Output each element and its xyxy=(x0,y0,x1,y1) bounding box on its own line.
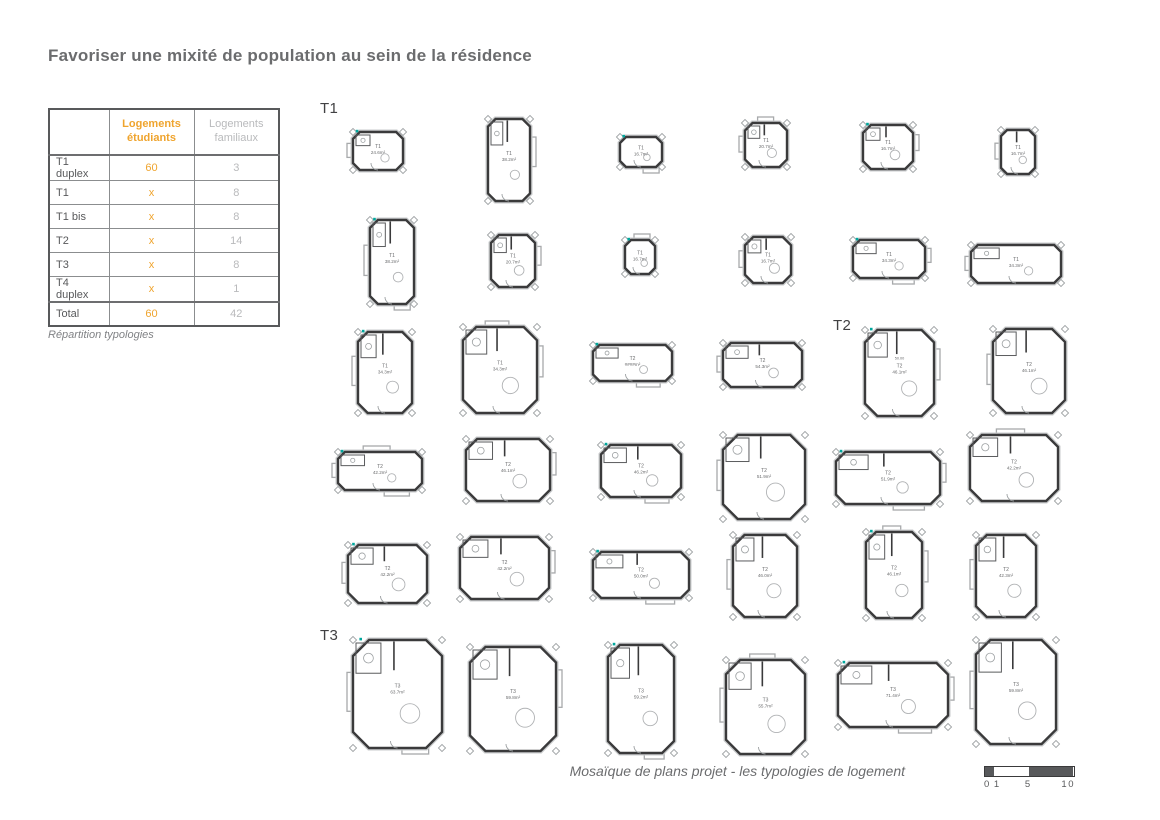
table-row-t1-bis: T1 bisx8 xyxy=(49,205,279,229)
plan-area-label: 16.7m² xyxy=(881,146,896,151)
plan-corner-column xyxy=(423,541,430,548)
plan-corner-column xyxy=(972,613,979,620)
plan-corner-column xyxy=(438,744,445,751)
floor-plan-t3: T363.7m² xyxy=(345,633,450,755)
value-familiaux: 8 xyxy=(194,205,279,229)
floor-plan-t3: T359.8m² xyxy=(462,640,564,758)
value-etudiants: x xyxy=(109,229,194,253)
floor-plan-t1: T138.2m² xyxy=(480,112,538,208)
plan-corner-column xyxy=(722,656,729,663)
plan-area-label: ####m² xyxy=(625,362,641,367)
slide: Favoriser une mixité de population au se… xyxy=(0,0,1160,820)
plan-corner-column xyxy=(972,636,979,643)
plan-area-label: 38.2m² xyxy=(502,157,517,162)
plan-area-label: 59.2m² xyxy=(634,695,649,700)
plan-area-label: 51.9m² xyxy=(881,476,896,481)
plan-corner-column xyxy=(729,613,736,620)
plan-area-label: 16.7m² xyxy=(1011,151,1026,156)
plan-area-label: 55.7m² xyxy=(758,703,773,708)
table-row-t1-duplex: T1 duplex603 xyxy=(49,155,279,181)
plan-area-label: 46.1m² xyxy=(501,468,516,473)
floor-plan-t3: T359.2m² xyxy=(600,638,682,760)
floor-plan-t2: T242.2m² xyxy=(340,538,435,610)
plan-corner-column xyxy=(793,531,800,538)
value-etudiants: 60 xyxy=(109,302,194,326)
plan-corner-column xyxy=(604,749,611,756)
floor-plan-t2: T246.0m² xyxy=(725,528,805,624)
plan-corner-column xyxy=(456,533,463,540)
floor-plan-t2: T246.2m² xyxy=(593,438,689,504)
table-row-total: Total6042 xyxy=(49,302,279,326)
value-familiaux: 3 xyxy=(194,155,279,181)
table-header-row: Logements étudiants Logements familiaux xyxy=(49,109,279,155)
floor-plan-t2: T242.2m² xyxy=(962,428,1066,508)
scale-bar-segment xyxy=(985,767,994,776)
plan-area-label: 50.0m² xyxy=(634,574,649,579)
plan-corner-column xyxy=(966,431,973,438)
plan-area-label: 24.6m² xyxy=(371,150,386,155)
plan-corner-column xyxy=(862,528,869,535)
row-label: T4 duplex xyxy=(49,277,109,303)
plan-corner-column xyxy=(456,595,463,602)
plan-area-label: 63.7m² xyxy=(390,690,405,695)
plan-corner-column xyxy=(862,614,869,621)
plan-corner-column xyxy=(408,409,415,416)
typology-table-body: T1 duplex603T1x8T1 bisx8T2x14T3x8T4 dupl… xyxy=(49,155,279,326)
plan-corner-column xyxy=(936,448,943,455)
plan-corner-column xyxy=(793,613,800,620)
floor-plan-t1: T116.7m² xyxy=(617,233,663,281)
plan-area-label: 46.1m² xyxy=(1022,368,1037,373)
floor-plan-t2: T242.2m² xyxy=(452,530,557,606)
plan-corner-column xyxy=(462,435,469,442)
plan-area-label: 20.7m² xyxy=(506,259,521,264)
floor-plan-t2: T242.3m² xyxy=(968,528,1044,624)
plan-corner-column xyxy=(832,500,839,507)
plan-corner-column xyxy=(545,595,552,602)
plan-area-label: 46.1m² xyxy=(892,370,907,375)
plan-corner-column xyxy=(930,412,937,419)
plan-corner-column xyxy=(677,493,684,500)
plan-corner-column xyxy=(670,641,677,648)
plan-area-label: 34.3m² xyxy=(882,258,897,263)
plan-corner-column xyxy=(466,643,473,650)
scale-label-0-1: 0 1 xyxy=(984,779,1000,790)
plan-area-label: 42.2m² xyxy=(380,572,395,577)
plan-area-label: 34.3m² xyxy=(1009,263,1024,268)
plan-corner-column xyxy=(944,723,951,730)
plan-extra-label: 50.00 xyxy=(895,357,905,361)
row-label: T1 xyxy=(49,181,109,205)
floor-plan-t2: T251.9m² xyxy=(828,445,948,511)
scale-bar-labels: 0 1 5 10 xyxy=(984,779,1075,791)
plan-corner-column xyxy=(719,515,726,522)
value-familiaux: 8 xyxy=(194,181,279,205)
table-row-t2: T2x14 xyxy=(49,229,279,253)
floor-plan-t1: T138.2m² xyxy=(362,213,422,311)
plan-corner-column xyxy=(801,656,808,663)
plan-corner-column xyxy=(972,740,979,747)
value-etudiants: x xyxy=(109,253,194,277)
value-etudiants: 60 xyxy=(109,155,194,181)
floor-plan-t1: T116.7m² xyxy=(737,230,799,290)
floor-plan-t2: T246.1m² xyxy=(858,525,930,625)
plan-corner-column xyxy=(801,750,808,757)
floor-plan-t1: T134.3m² xyxy=(455,320,545,420)
plan-area-label: 54.3m² xyxy=(755,364,770,369)
value-familiaux: 8 xyxy=(194,253,279,277)
floor-plan-t1: T116.7m² xyxy=(855,118,921,176)
plan-corner-column xyxy=(918,528,925,535)
plan-area-label: 38.2m² xyxy=(385,259,400,264)
plan-corner-column xyxy=(972,531,979,538)
value-familiaux: 14 xyxy=(194,229,279,253)
plan-corner-column xyxy=(832,448,839,455)
plan-area-label: 59.8m² xyxy=(1009,688,1024,693)
plan-corner-column xyxy=(801,431,808,438)
floor-plan-t1: T134.3m² xyxy=(845,233,933,285)
value-etudiants: x xyxy=(109,205,194,229)
plan-corner-column xyxy=(354,328,361,335)
row-label: T3 xyxy=(49,253,109,277)
plan-corner-column xyxy=(597,493,604,500)
value-familiaux: 1 xyxy=(194,277,279,303)
plan-corner-column xyxy=(1032,531,1039,538)
section-label-t1: T1 xyxy=(320,100,338,117)
row-label: T1 duplex xyxy=(49,155,109,181)
floor-plan-t2: T254.3m² xyxy=(715,336,810,394)
plan-area-label: 42.2m² xyxy=(497,566,512,571)
row-label: T1 bis xyxy=(49,205,109,229)
value-etudiants: x xyxy=(109,181,194,205)
plan-area-label: 51.9m² xyxy=(757,474,772,479)
plan-corner-column xyxy=(354,409,361,416)
plan-area-label: 34.3m² xyxy=(378,369,393,374)
plan-corner-column xyxy=(944,659,951,666)
plan-area-label: 46.2m² xyxy=(634,469,649,474)
plan-corner-column xyxy=(801,515,808,522)
plan-corner-column xyxy=(604,641,611,648)
plan-corner-column xyxy=(719,431,726,438)
plan-corner-column xyxy=(1052,740,1059,747)
plan-corner-column xyxy=(677,441,684,448)
plan-corner-column xyxy=(349,744,356,751)
plan-corner-column xyxy=(861,326,868,333)
floor-plan-t1: T120.7m² xyxy=(483,228,543,294)
plan-area-label: 46.1m² xyxy=(887,572,902,577)
plan-corner-column xyxy=(1052,636,1059,643)
floor-plan-t2: T246.1m² xyxy=(985,322,1073,420)
floor-plan-t2: T246.1m² xyxy=(458,432,558,508)
table-caption: Répartition typologies xyxy=(48,329,154,341)
scale-bar xyxy=(984,766,1075,777)
floor-plan-t1: T116.7m² xyxy=(993,123,1043,181)
floor-plan-t2: T242.2m² xyxy=(330,445,430,497)
plan-area-label: 34.3m² xyxy=(493,367,508,372)
row-label: Total xyxy=(49,302,109,326)
plan-corner-column xyxy=(834,723,841,730)
floor-plan-t1: T124.6m² xyxy=(345,125,411,177)
plan-area-label: 46.0m² xyxy=(758,573,773,578)
plan-corner-column xyxy=(344,541,351,548)
plan-area-label: 20.7m² xyxy=(759,144,774,149)
plan-corner-column xyxy=(989,409,996,416)
plan-area-label: 42.2m² xyxy=(373,470,388,475)
plan-corner-column xyxy=(834,659,841,666)
scale-label-5: 5 xyxy=(1025,779,1031,790)
floor-plan-t1: T134.3m² xyxy=(963,238,1069,290)
plan-corner-column xyxy=(408,328,415,335)
plan-area-label: 42.2m² xyxy=(1007,466,1022,471)
plan-corner-column xyxy=(552,643,559,650)
plan-corner-column xyxy=(438,636,445,643)
floor-plan-t3: T371.4m² xyxy=(830,656,956,734)
plan-corner-column xyxy=(861,412,868,419)
floor-plan-t1: T116.7m² xyxy=(612,130,670,174)
plan-corner-column xyxy=(918,614,925,621)
value-familiaux: 42 xyxy=(194,302,279,326)
plan-corner-column xyxy=(930,326,937,333)
plan-corner-column xyxy=(1054,497,1061,504)
plan-corner-column xyxy=(546,497,553,504)
plan-corner-column xyxy=(722,750,729,757)
typology-table-head: Logements étudiants Logements familiaux xyxy=(49,109,279,155)
plan-area-label: 59.8m² xyxy=(506,695,521,700)
floor-plan-t3: T359.8m² xyxy=(968,633,1064,751)
header-cell-familiaux: Logements familiaux xyxy=(194,109,279,155)
plan-corner-column xyxy=(344,599,351,606)
scale-label-10: 10 xyxy=(1061,779,1075,790)
plan-corner-column xyxy=(1054,431,1061,438)
plan-area-label: 16.7m² xyxy=(761,259,776,264)
floor-plan-t1: T134.3m² xyxy=(350,325,420,420)
plan-corner-column xyxy=(729,531,736,538)
floor-plan-t1: T120.7m² xyxy=(737,116,795,174)
floor-plan-t2: T250.0m² xyxy=(585,545,697,605)
plan-corner-column xyxy=(936,500,943,507)
scale-bar-segment xyxy=(1029,767,1073,776)
header-cell-etudiants: Logements étudiants xyxy=(109,109,194,155)
plan-corner-column xyxy=(466,747,473,754)
section-label-t2: T2 xyxy=(833,317,851,334)
plan-area-label: 42.3m² xyxy=(999,573,1014,578)
plan-area-label: 16.7m² xyxy=(634,152,649,157)
row-label: T2 xyxy=(49,229,109,253)
floor-plan-t2: T251.9m² xyxy=(715,428,813,526)
value-etudiants: x xyxy=(109,277,194,303)
table-row-t3: T3x8 xyxy=(49,253,279,277)
plan-corner-column xyxy=(545,533,552,540)
plan-corner-column xyxy=(533,323,540,330)
plan-area-label: 16.7m² xyxy=(633,256,648,261)
plan-corner-column xyxy=(349,636,356,643)
plan-corner-column xyxy=(1061,409,1068,416)
table-row-t4-duplex: T4 duplexx1 xyxy=(49,277,279,303)
plan-corner-column xyxy=(989,325,996,332)
plan-corner-column xyxy=(670,749,677,756)
footer-caption: Mosaïque de plans projet - les typologie… xyxy=(570,763,905,779)
plan-corner-column xyxy=(546,435,553,442)
plan-corner-column xyxy=(459,323,466,330)
plan-corner-column xyxy=(423,599,430,606)
floor-plan-t3: T355.7m² xyxy=(718,653,813,761)
page-title: Favoriser une mixité de population au se… xyxy=(48,46,532,66)
plan-corner-column xyxy=(533,409,540,416)
plan-area-label: 71.4m² xyxy=(886,693,901,698)
typology-table: Logements étudiants Logements familiaux … xyxy=(48,108,280,327)
plan-corner-column xyxy=(1061,325,1068,332)
plan-corner-column xyxy=(459,409,466,416)
section-label-t3: T3 xyxy=(320,627,338,644)
header-cell-empty xyxy=(49,109,109,155)
plan-corner-column xyxy=(597,441,604,448)
plan-corner-column xyxy=(1032,613,1039,620)
plan-corner-column xyxy=(966,497,973,504)
floor-plan-t2: T2####m² xyxy=(585,338,680,388)
scale-bar-segment xyxy=(994,767,1029,776)
plan-corner-column xyxy=(552,747,559,754)
floor-plan-t2: 50.00T246.1m² xyxy=(857,323,942,423)
plan-corner-column xyxy=(462,497,469,504)
table-row-t1: T1x8 xyxy=(49,181,279,205)
